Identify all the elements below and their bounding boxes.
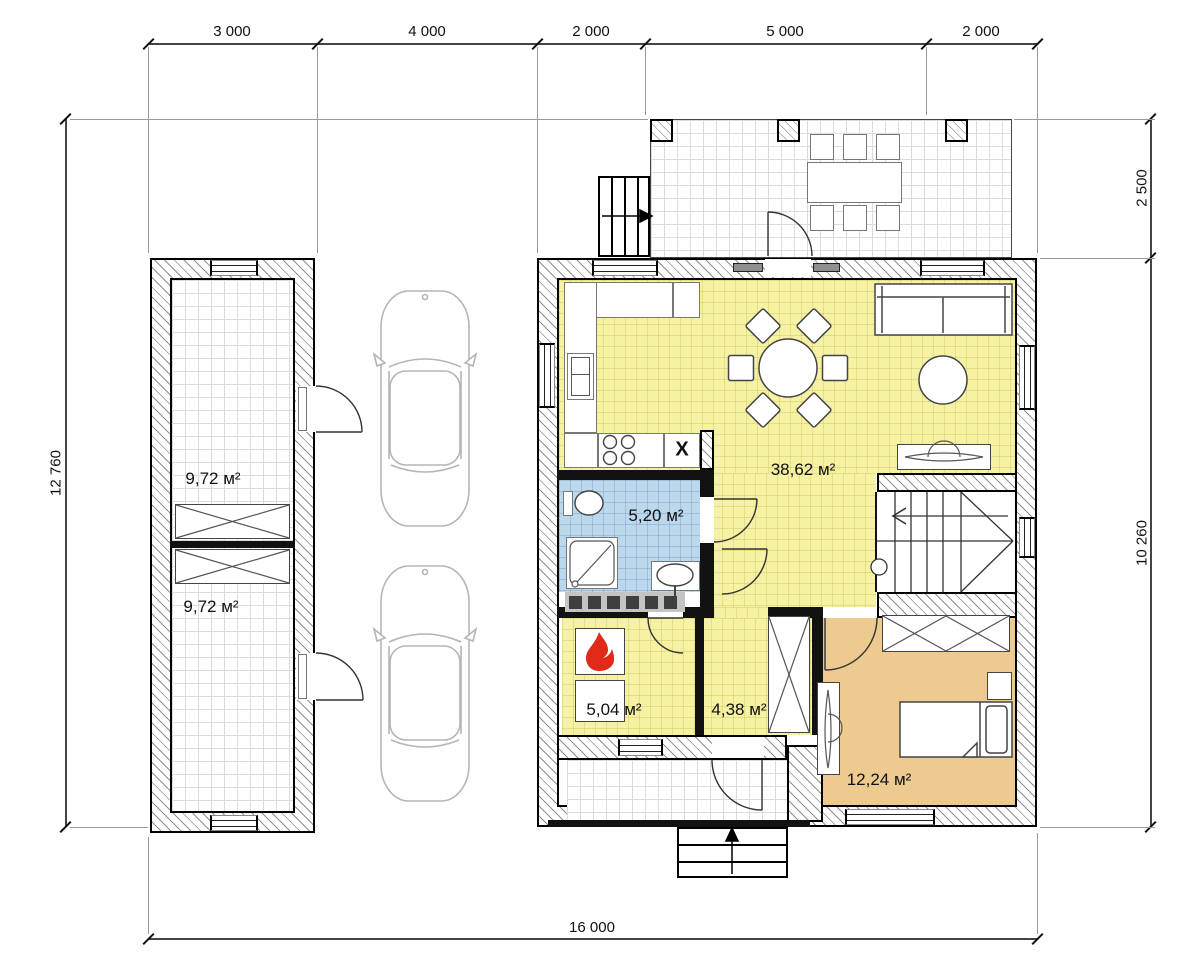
porch-floor (567, 760, 787, 822)
terrace-chair (810, 205, 834, 231)
boiler-unit (575, 628, 625, 675)
extension-line (926, 47, 927, 115)
step-line (611, 178, 613, 255)
floor-plan: 3 000 4 000 2 000 5 000 2 000 12 760 2 5… (0, 0, 1200, 960)
stairs-window-right (1019, 517, 1035, 558)
extension-line (148, 47, 149, 253)
stairs-top-wall (877, 473, 1017, 492)
terrace-door-sidelight (733, 263, 763, 272)
extension-line (1014, 119, 1155, 120)
garage-partition-wall (170, 541, 295, 548)
terrace-chair (876, 134, 900, 160)
kitchen-living-wall-stub (700, 430, 714, 470)
hall-wardrobe (768, 616, 810, 733)
garage-window-bottom (210, 815, 258, 831)
dim-line-bottom (148, 938, 1037, 940)
bedroom-tv-stand (817, 682, 840, 775)
bathroom-door-opening (700, 497, 714, 543)
utility-strip-cell (588, 596, 601, 609)
room-label-boiler: 5,04 м² (586, 700, 641, 720)
porch-bottom-edge (548, 820, 810, 827)
utility-strip-cell (569, 596, 582, 609)
terrace-chair (810, 134, 834, 160)
extension-line (1037, 47, 1038, 253)
counter-divider (663, 434, 665, 467)
dim-label-right-lower: 10 260 (1134, 520, 1151, 566)
stairs-left-edge (875, 492, 877, 592)
dim-line-right (1150, 119, 1152, 827)
lower-wall-segment (683, 607, 714, 618)
room-label-living-kitchen: 38,62 м² (771, 460, 836, 480)
step-line (679, 861, 786, 863)
terrace-column (650, 119, 673, 142)
kitchen-window-top (592, 260, 658, 276)
bathroom-sink-base (651, 561, 700, 591)
garage-storage-box-2 (175, 549, 290, 584)
step-line (637, 178, 639, 255)
kitchen-sink-mark: X (675, 439, 688, 462)
living-window-right (1019, 345, 1035, 410)
utility-strip-cell (607, 596, 620, 609)
bedroom-nightstand (987, 672, 1012, 700)
dim-label-top-4: 5 000 (766, 23, 804, 40)
extension-line (1037, 833, 1038, 934)
bedroom-window-bottom (845, 809, 935, 825)
garage-door-leaf-2 (298, 654, 307, 699)
room-label-hallway: 4,38 м² (711, 700, 766, 720)
boiler-window (618, 739, 663, 756)
dim-label-bottom: 16 000 (569, 919, 615, 936)
dim-label-right-upper: 2 500 (1134, 169, 1151, 207)
terrace-column (945, 119, 968, 142)
car-icon (374, 291, 476, 526)
dim-line-top (148, 43, 1037, 45)
bathroom-top-wall (557, 470, 714, 480)
step-line (624, 178, 626, 255)
kitchen-window-left (539, 343, 555, 408)
terrace-table (807, 162, 902, 203)
counter-divider (672, 283, 674, 317)
hallway-opening-floor (714, 607, 768, 618)
dim-label-top-2: 4 000 (408, 23, 446, 40)
bedroom-door-opening (823, 607, 877, 618)
garage-door-swing (316, 386, 363, 700)
room-label-garage-1: 9,72 м² (185, 469, 240, 489)
extension-line (645, 47, 646, 115)
dim-label-top-1: 3 000 (213, 23, 251, 40)
boiler-hall-wall (695, 618, 704, 735)
dim-line-left (65, 119, 67, 827)
extension-line (1040, 827, 1155, 828)
extension-line (537, 47, 538, 253)
utility-strip-cell (626, 596, 639, 609)
room-label-garage-2: 9,72 м² (183, 597, 238, 617)
extension-line (317, 47, 318, 253)
terrace-door-opening (765, 259, 811, 277)
bedroom-wardrobe (882, 615, 1010, 652)
extension-line (148, 837, 149, 934)
toilet-tank (563, 491, 573, 516)
corridor-floor (700, 473, 876, 607)
terrace-chair (843, 205, 867, 231)
porch-door-opening (712, 737, 764, 758)
terrace-door-sidelight (813, 263, 840, 272)
shower-tray (566, 537, 618, 589)
entrance-steps (677, 827, 788, 878)
fridge-divider (571, 374, 590, 375)
terrace-chair (876, 205, 900, 231)
room-label-bedroom: 12,24 м² (847, 770, 912, 790)
living-window-top (920, 260, 985, 276)
extension-line (70, 119, 648, 120)
room-label-bathroom: 5,20 м² (628, 506, 683, 526)
utility-strip-cell (664, 596, 677, 609)
terrace-chair (843, 134, 867, 160)
extension-line (70, 827, 148, 828)
fridge-inner (571, 357, 590, 396)
extension-line (1040, 258, 1155, 259)
garage-window-top (210, 260, 258, 276)
dim-label-top-3: 2 000 (572, 23, 610, 40)
step-line (679, 844, 786, 846)
car-icon (374, 566, 476, 801)
garage-door-leaf-1 (298, 387, 307, 431)
counter-divider (597, 434, 599, 467)
terrace-column (777, 119, 800, 142)
dim-label-top-5: 2 000 (962, 23, 1000, 40)
living-tv-cabinet (897, 444, 991, 470)
utility-strip-cell (645, 596, 658, 609)
dim-label-left: 12 760 (48, 450, 65, 496)
garage-storage-box-1 (175, 504, 290, 539)
